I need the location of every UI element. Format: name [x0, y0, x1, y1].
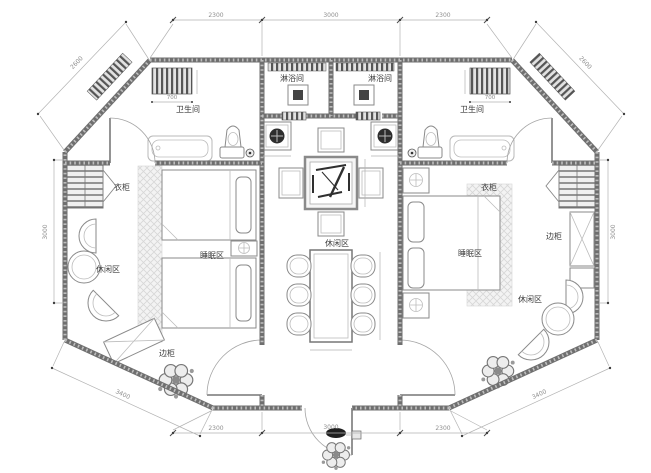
label-sideboard-right: 边柜 — [546, 231, 562, 241]
carpet-left — [138, 166, 162, 342]
shower-door-left — [282, 112, 306, 120]
label-wardrobe-left: 衣柜 — [114, 182, 130, 192]
floor-plan: 2300 3000 2300 2300 3000 2300 3000 3000 … — [0, 0, 651, 473]
toilet-left — [220, 126, 254, 158]
dim-top-left: 2300 — [208, 12, 223, 19]
label-sleeping-left: 睡眠区 — [200, 251, 224, 260]
washbasin-left — [263, 122, 291, 150]
label-sleeping-right: 睡眠区 — [458, 249, 482, 258]
tea-stool-left — [279, 168, 303, 198]
bathtub-right — [450, 136, 514, 161]
nightstand-right-bottom — [403, 293, 429, 318]
dim-diag-top-right: 2600 — [577, 55, 593, 71]
sideboard-left — [104, 318, 165, 363]
wardrobe-left — [67, 163, 116, 208]
label-shower-right: 淋浴间 — [368, 73, 392, 83]
floor-drain-left — [288, 85, 308, 105]
dining-table — [310, 250, 352, 342]
floor-drain-right — [354, 85, 374, 105]
bed-single-left-1 — [162, 170, 256, 240]
label-lounge-right: 休闲区 — [518, 294, 542, 304]
radiator-left — [152, 68, 192, 94]
dim-radiator-left: 700 — [167, 95, 178, 101]
window-band-shower-right — [336, 63, 394, 71]
floor-plan-drawing: 2300 3000 2300 2300 3000 2300 3000 3000 … — [0, 0, 651, 473]
nightstand-left — [231, 241, 257, 256]
dim-diag-bottom-right: 3400 — [531, 388, 548, 401]
dim-bottom-right: 2300 — [435, 425, 450, 432]
nightstand-right-top — [403, 168, 429, 193]
toilet-right — [408, 126, 442, 158]
washbasin-right — [371, 122, 399, 150]
label-bathroom-right: 卫生间 — [460, 104, 484, 114]
door-bedroom-left — [207, 340, 262, 395]
bed-single-left-2 — [162, 258, 256, 328]
dim-diag-top-left: 2600 — [69, 55, 85, 71]
lounge-chair-left-1 — [79, 219, 96, 253]
window-band-corner-left — [87, 53, 132, 100]
lounge-table-right — [542, 303, 574, 335]
lounge-chair-left-2 — [81, 290, 119, 328]
dim-radiator-right: 700 — [485, 95, 496, 101]
label-sideboard-left: 边柜 — [159, 348, 175, 358]
tea-stool-right — [359, 168, 383, 198]
door-bedroom-right — [400, 340, 455, 395]
dim-bottom-center: 3000 — [323, 424, 338, 431]
tea-stool-top — [318, 128, 344, 152]
sideboard-right — [570, 212, 594, 288]
label-shower-left: 淋浴间 — [280, 73, 304, 83]
shower-door-right — [356, 112, 380, 120]
bathtub-left — [148, 136, 212, 161]
bed-double-right — [403, 196, 500, 290]
radiator-right — [470, 68, 510, 94]
plant-icon-entrance — [322, 443, 351, 470]
dim-top-right: 2300 — [435, 12, 450, 19]
dim-bottom-left: 2300 — [208, 425, 223, 432]
wardrobe-right — [546, 163, 595, 208]
dim-side-right: 3000 — [610, 224, 617, 239]
dim-side-left: 3000 — [42, 224, 49, 239]
tea-stool-bottom — [318, 212, 344, 236]
label-wardrobe-right: 衣柜 — [481, 182, 497, 192]
dim-diag-bottom-left: 3400 — [114, 388, 131, 401]
label-bathroom-left: 卫生间 — [176, 104, 200, 114]
tea-table — [305, 157, 357, 209]
label-lounge-center: 休闲区 — [325, 238, 349, 248]
window-band-corner-right — [530, 53, 575, 100]
dim-top-center: 3000 — [323, 12, 338, 19]
label-lounge-left: 休闲区 — [96, 264, 120, 274]
window-band-shower-left — [268, 63, 326, 71]
